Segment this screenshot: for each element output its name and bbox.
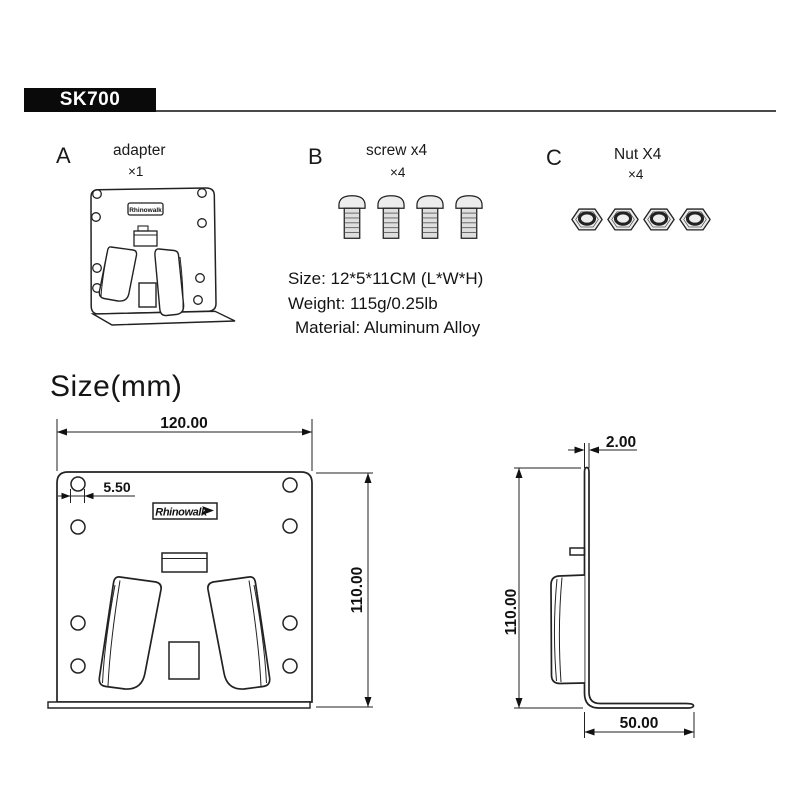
front-base-lip — [48, 702, 310, 708]
part-b-letter: B — [308, 144, 323, 170]
nut-icon — [642, 204, 676, 234]
part-b-name: screw x4 — [366, 142, 427, 160]
size-section-title: Size(mm) — [50, 370, 182, 404]
side-depth-label: 50.00 — [620, 715, 659, 732]
part-a-letter: A — [56, 143, 71, 169]
front-logo-text: Rhinowalk — [155, 507, 208, 519]
spec-material: Material: Aluminum Alloy — [288, 316, 483, 341]
part-c-qty: ×4 — [628, 167, 643, 182]
side-profile — [585, 468, 694, 709]
part-c-letter: C — [546, 145, 562, 171]
screw-group — [337, 192, 484, 241]
nut-icon — [570, 204, 604, 234]
screw-icon — [376, 192, 406, 241]
side-thickness-label: 2.00 — [606, 434, 636, 451]
part-a-qty: ×1 — [128, 164, 143, 179]
front-width-dimension: 120.00 — [57, 415, 312, 471]
spec-list: Size: 12*5*11CM (L*W*H) Weight: 115g/0.2… — [288, 267, 483, 341]
spec-size: Size: 12*5*11CM (L*W*H) — [288, 267, 483, 292]
side-tab — [570, 548, 585, 555]
front-height-label: 110.00 — [349, 567, 366, 614]
side-depth-dimension: 50.00 — [585, 712, 695, 738]
model-label: SK700 — [60, 89, 121, 111]
nut-group — [570, 204, 712, 234]
front-height-dimension: 110.00 — [316, 473, 373, 707]
side-height-label: 110.00 — [503, 589, 520, 636]
screw-icon — [415, 192, 445, 241]
side-view-drawing: 2.00 110.00 50.00 — [490, 430, 720, 745]
part-b-qty: ×4 — [390, 165, 405, 180]
front-hole-label: 5.50 — [103, 479, 130, 495]
model-badge: SK700 — [24, 88, 156, 112]
nut-icon — [606, 204, 640, 234]
screw-icon — [337, 192, 367, 241]
screw-icon — [454, 192, 484, 241]
side-thickness-dimension: 2.00 — [568, 434, 637, 468]
front-width-label: 120.00 — [160, 415, 207, 432]
adapter-logo-text: Rhinowalk — [129, 207, 162, 214]
adapter-right-clip — [155, 249, 184, 316]
side-clip — [551, 575, 585, 684]
front-view-drawing: 120.00 5.50 Rhinowalk 110. — [40, 405, 380, 720]
part-a-name: adapter — [113, 142, 166, 160]
spec-weight: Weight: 115g/0.25lb — [288, 292, 483, 317]
adapter-drawing: Rhinowalk — [85, 185, 240, 330]
part-c-name: Nut X4 — [614, 146, 661, 164]
header-rule — [156, 110, 776, 112]
nut-icon — [678, 204, 712, 234]
